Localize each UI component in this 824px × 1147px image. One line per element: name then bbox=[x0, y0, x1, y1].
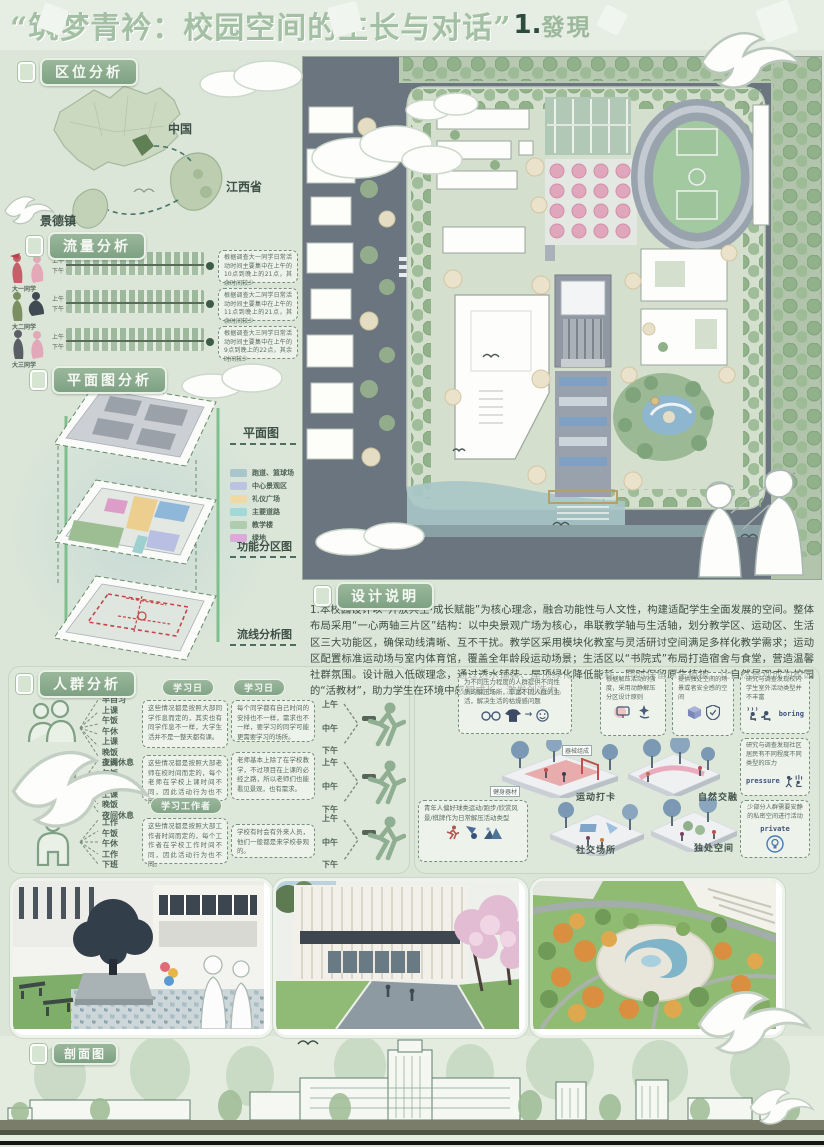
shirt-icon bbox=[505, 709, 521, 722]
section-design-notes: 设计说明 bbox=[314, 582, 434, 610]
section-marker-icon bbox=[314, 586, 331, 606]
legend-item: 教学楼 bbox=[230, 520, 273, 530]
crowd-note-box: 老师基本上除了在学校教学，不过项目在上课的必经之路，所以老师们也能看见景观，也有… bbox=[231, 752, 315, 800]
scene-nature-label: 自然交融 bbox=[698, 790, 738, 803]
arrow-icon: → bbox=[525, 709, 533, 723]
stressed-figures-icon bbox=[784, 771, 804, 791]
legend-label: 中心景观区 bbox=[252, 481, 287, 491]
flow-row-label: 大一同学 bbox=[12, 284, 36, 293]
smiley-icon bbox=[536, 709, 549, 722]
legend-label: 主要道路 bbox=[252, 507, 280, 517]
sitting-figures-icon bbox=[746, 705, 775, 723]
cube-icon bbox=[687, 705, 702, 720]
layer-label-plan: 平面图 bbox=[243, 424, 279, 441]
legend-swatch bbox=[230, 521, 247, 529]
lightbulb-icon bbox=[766, 835, 784, 853]
chevron-connector bbox=[342, 702, 362, 746]
insight-text: 根据解压活动的强度，采用动静解压分区设计原则 bbox=[606, 676, 656, 701]
section-marker-icon bbox=[30, 370, 47, 390]
legend-item: 绿地 bbox=[230, 533, 266, 543]
scene-sport-label: 运动打卡 bbox=[576, 790, 616, 803]
legend-label: 跑道、篮球场 bbox=[252, 468, 294, 478]
legend-swatch bbox=[230, 482, 247, 490]
insight-box-private: 少部分人群需要安静的私密空间进行活动 private bbox=[740, 800, 810, 858]
legend-swatch bbox=[230, 495, 247, 503]
time-label: 中午 bbox=[322, 723, 338, 734]
section-marker-icon bbox=[26, 236, 43, 256]
glasses-icon bbox=[481, 711, 501, 721]
mini-runner-icon bbox=[445, 825, 460, 840]
youth-note-text: 青年人偏好球类运动/跑步/欣赏风景/棋牌作为日常解压活动类型 bbox=[424, 804, 518, 822]
youth-preference-box: 青年人偏好球类运动/跑步/欣赏风景/棋牌作为日常解压活动类型 bbox=[418, 800, 528, 862]
legend-item: 中心景观区 bbox=[230, 481, 287, 491]
flow-note-box: 根据调查大三同学日常活动时间主要集中在上午的9点到晚上的22点，其余时间较少 bbox=[218, 326, 298, 359]
layer-dash-line bbox=[230, 644, 296, 646]
insight-box-boring: 研究与调查发现校内学生室外活动类型并不丰富 boring bbox=[740, 672, 810, 734]
section-marker-icon bbox=[16, 674, 33, 694]
insight-text: 少部分人群需要安静的私密空间进行活动 bbox=[747, 804, 803, 820]
shuttlecock-icon bbox=[464, 825, 480, 840]
legend-item: 跑道、篮球场 bbox=[230, 468, 294, 478]
label-province: 江西省 bbox=[226, 178, 262, 195]
sparkle-hand-icon bbox=[636, 705, 652, 720]
flow-pm-label: 下午 bbox=[52, 342, 64, 351]
crowd-note-box: 每个同学都有自己时间的安排也不一样，需求也不一样，要学习的同学可能更需要学习的场… bbox=[231, 700, 315, 742]
section-marker-icon bbox=[18, 62, 35, 82]
section-drawing-title: 剖面图 bbox=[52, 1042, 118, 1065]
render-facade-photo bbox=[273, 878, 528, 1038]
render-courtyard-photo bbox=[10, 878, 273, 1038]
pressure-tag: pressure bbox=[746, 776, 780, 786]
facade-render-illustration bbox=[276, 881, 519, 1029]
flow-row-label: 大二同学 bbox=[12, 322, 36, 331]
timeline-end-dot bbox=[206, 262, 214, 270]
section-plan-analysis: 平面图分析 bbox=[30, 366, 167, 394]
confetti-shape bbox=[596, 4, 628, 36]
layer-dash-line bbox=[230, 556, 296, 558]
timeline-end-dot bbox=[206, 300, 214, 308]
tag-study-day-1: 学习日 bbox=[162, 679, 214, 696]
bottom-edge-line bbox=[0, 1141, 824, 1145]
plan-layers-illustration bbox=[38, 380, 250, 666]
legend-item: 主要道路 bbox=[230, 507, 280, 517]
page-title: “筑梦青衿：校园空间的生长与对话” bbox=[10, 3, 512, 47]
page-subtitle: 發現 bbox=[541, 8, 591, 42]
flow-pm-label: 下午 bbox=[52, 304, 64, 313]
section-drawing-header: 剖面图 bbox=[30, 1042, 118, 1065]
flow-pm-label: 下午 bbox=[52, 266, 64, 275]
chevron-connector bbox=[342, 760, 362, 804]
legend-label: 绿地 bbox=[252, 533, 266, 543]
flow-am-label: 上午 bbox=[52, 332, 64, 341]
monitor-icon bbox=[614, 705, 632, 719]
section-marker-icon bbox=[30, 1044, 47, 1064]
time-label: 中午 bbox=[322, 837, 338, 848]
shield-check-icon bbox=[706, 705, 720, 720]
seagull-icon bbox=[0, 726, 170, 846]
section-plan-analysis-title: 平面图分析 bbox=[52, 366, 167, 394]
time-label: 上午 bbox=[322, 813, 338, 824]
section-crowd: 人群分析 bbox=[16, 670, 136, 698]
running-figure-icon bbox=[360, 758, 406, 808]
crowd-note-box: 学校有时会有外来人员，他们一般都是来学校参观的。 bbox=[231, 824, 315, 858]
page-number: 1. bbox=[514, 10, 542, 40]
students-pair-icon bbox=[6, 290, 50, 322]
legend-swatch bbox=[230, 469, 247, 477]
insight-box-destress: 为不同压力程度的人群提供不同性质的解压场所，丰富不同人群的生活，解决生活的枯燥感… bbox=[458, 674, 572, 734]
time-label: 中午 bbox=[322, 781, 338, 792]
legend-label: 教学楼 bbox=[252, 520, 273, 530]
scene-social-label: 社交场所 bbox=[576, 843, 616, 856]
scene-nature-illustration bbox=[618, 738, 730, 796]
flow-timeline-bars bbox=[66, 328, 204, 351]
seagull-icon bbox=[688, 968, 824, 1072]
mountain-icon bbox=[484, 826, 502, 840]
boring-tag: boring bbox=[779, 709, 804, 719]
cloud-icon bbox=[196, 56, 308, 102]
insight-text: 为不同压力程度的人群提供不同性质的解压场所，丰富不同人群的生活，解决生活的枯燥感… bbox=[464, 678, 560, 705]
insight-text: 研究与调查发现校内学生室外活动类型并不丰富 bbox=[746, 676, 802, 701]
section-flow: 流量分析 bbox=[26, 232, 146, 260]
tag-study-day-2: 学习日 bbox=[233, 679, 285, 696]
flow-note-box: 根据调查大二同学日常活动时间主要集中在上午的11点到晚上的21点，其余时间较少 bbox=[218, 288, 298, 321]
cloud-icon bbox=[402, 88, 482, 124]
scene-fitness-label: 健身器材 bbox=[490, 786, 520, 797]
flow-timeline-bars bbox=[66, 290, 204, 313]
legend-swatch bbox=[230, 508, 247, 516]
cloud-icon bbox=[310, 516, 430, 560]
insight-box-zoning: 根据解压活动的强度，采用动静解压分区设计原则 bbox=[600, 672, 666, 736]
legend-label: 礼仪广场 bbox=[252, 494, 280, 504]
section-crowd-title: 人群分析 bbox=[38, 670, 136, 698]
running-figure-icon bbox=[360, 700, 406, 750]
time-label: 下午 bbox=[322, 745, 338, 756]
time-label: 上午 bbox=[322, 757, 338, 768]
legend-swatch bbox=[230, 534, 247, 542]
time-label: 上午 bbox=[322, 699, 338, 710]
insight-box-solitude: 提供独处空间的场景或者安全感的空间 bbox=[672, 672, 734, 736]
courtyard-render-illustration bbox=[13, 881, 264, 1029]
scene-equipment-label: 器械组成 bbox=[562, 745, 592, 756]
scene-solo-label: 独处空间 bbox=[694, 841, 734, 854]
seagull-icon bbox=[744, 1076, 824, 1134]
time-label: 下午 bbox=[322, 859, 338, 870]
legend-item: 礼仪广场 bbox=[230, 494, 280, 504]
insight-text: 提供独处空间的场景或者安全感的空间 bbox=[678, 676, 728, 701]
design-notes-text: 1.本校园设计以“开放共生·成长赋能”为核心理念，融合功能性与人文性，构建适配学… bbox=[310, 602, 814, 658]
flow-note-box: 根据调查大一同学日常活动时间主要集中在上午的10点到晚上的21点，其余时间较少 bbox=[218, 250, 298, 283]
section-location-title: 区位分析 bbox=[40, 58, 138, 86]
layer-label-circulation: 流线分析图 bbox=[237, 626, 292, 642]
seagull-icon bbox=[692, 14, 818, 102]
chevron-connector bbox=[342, 818, 362, 862]
private-tag: private bbox=[760, 824, 790, 834]
flow-am-label: 上午 bbox=[52, 294, 64, 303]
section-design-notes-title: 设计说明 bbox=[336, 582, 434, 610]
seagull-icon bbox=[0, 186, 62, 232]
students-pair-icon bbox=[6, 328, 50, 360]
timeline-end-dot bbox=[206, 338, 214, 346]
insight-text: 研究与调查发现社区居民有不同程度不同类型的压力 bbox=[746, 742, 802, 767]
insight-box-pressure: 研究与调查发现社区居民有不同程度不同类型的压力 pressure bbox=[740, 738, 810, 796]
section-flow-title: 流量分析 bbox=[48, 232, 146, 260]
layer-dash-line bbox=[230, 443, 296, 445]
label-china: 中国 bbox=[168, 120, 192, 137]
section-location: 区位分析 bbox=[18, 58, 138, 86]
poster-root: “筑梦青衿：校园空间的生长与对话” 1. 發現 区位分析 中国 江西省 景德镇 … bbox=[0, 0, 824, 1147]
running-figure-icon bbox=[360, 814, 406, 864]
